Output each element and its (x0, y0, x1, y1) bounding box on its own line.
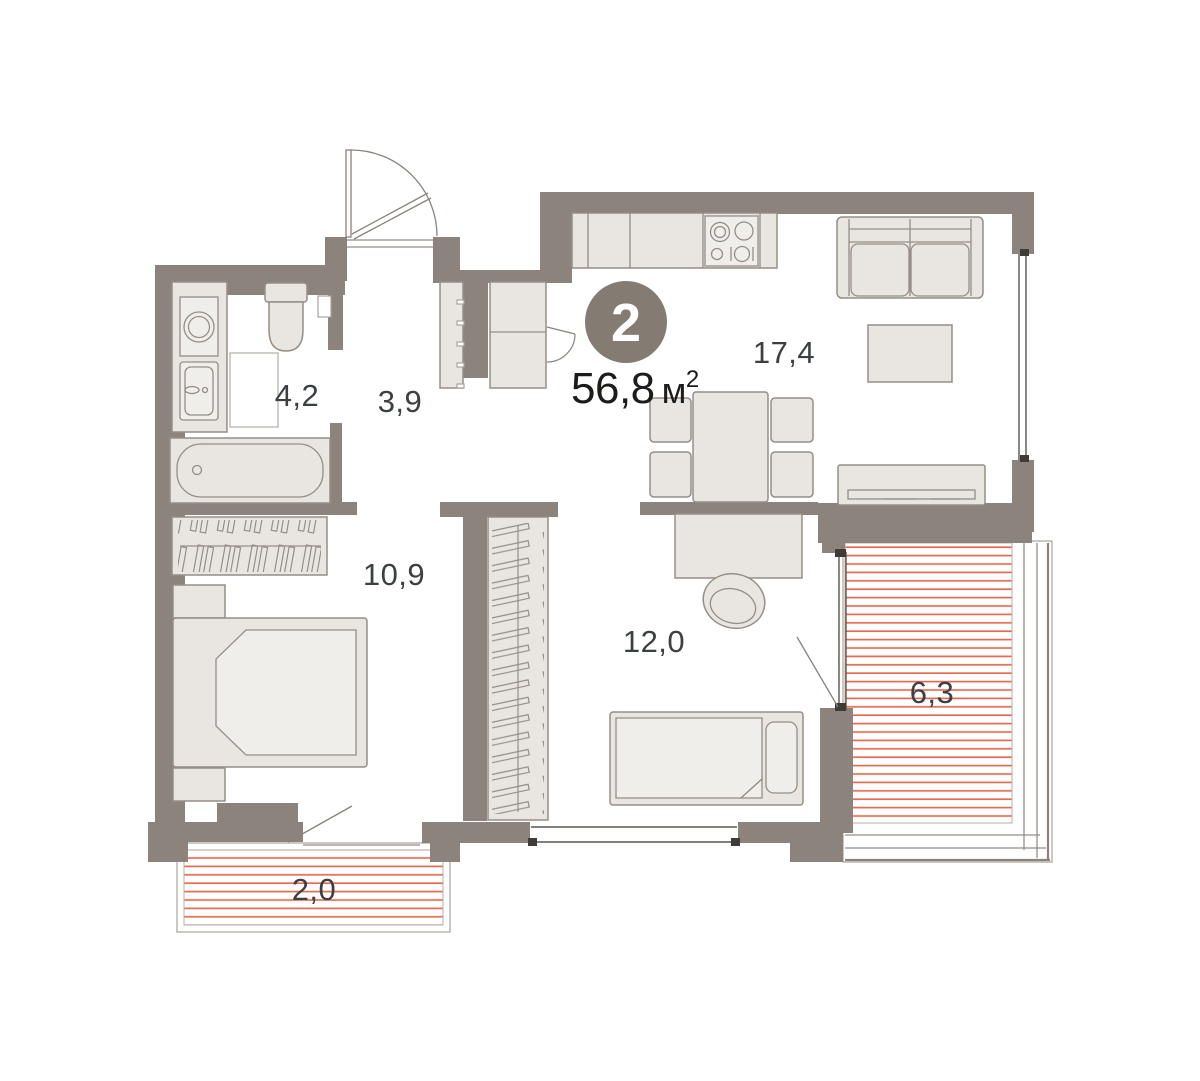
nightstand (173, 768, 225, 801)
tv-stand (838, 465, 985, 505)
sofa (837, 217, 983, 298)
floor-plan-svg: 4,2 3,9 10,9 12,0 17,4 6,3 2,0 2 56,8м2 (0, 0, 1200, 1081)
chair (771, 398, 813, 442)
child-room-area-label: 12,0 (623, 624, 685, 659)
hallway-furniture (440, 282, 575, 388)
entrance-door-swing (351, 150, 437, 236)
child-room-window (528, 827, 740, 846)
towel-holder (318, 296, 331, 317)
pillow (766, 722, 797, 793)
balcony-bottom-door (288, 806, 420, 845)
balcony-right-area-label: 6,3 (910, 675, 955, 710)
bedroom-closet (172, 517, 327, 575)
floor-plan: 4,2 3,9 10,9 12,0 17,4 6,3 2,0 2 56,8м2 (0, 0, 1200, 1081)
washing-machine (180, 297, 218, 356)
desk (675, 514, 802, 578)
coffee-table (868, 325, 952, 382)
nightstand (173, 585, 225, 618)
entrance-door (346, 150, 437, 247)
balcony-bottom-area-label: 2,0 (292, 872, 337, 907)
toilet (265, 283, 307, 351)
stove (705, 216, 758, 266)
balcony-right-door-swing (797, 637, 838, 707)
hallway-area-label: 3,9 (378, 384, 423, 419)
chair (771, 452, 813, 497)
bedroom-area-label: 10,9 (363, 557, 425, 592)
bathroom-area-label: 4,2 (275, 378, 320, 413)
kitchen-counter (572, 213, 777, 268)
child-room-furniture (488, 514, 803, 820)
bedroom-furniture (172, 517, 367, 801)
room-count: 2 (611, 293, 641, 353)
total-area: 56,8м2 (571, 364, 699, 413)
unit-badge: 2 56,8м2 (571, 281, 699, 413)
living-kitchen-area-label: 17,4 (753, 335, 815, 370)
chair (650, 452, 691, 497)
single-bed (610, 712, 803, 805)
hallway-closet (490, 282, 575, 388)
balcony-right-door (797, 549, 846, 711)
bathtub (170, 438, 330, 503)
hallway-shelf (440, 282, 464, 388)
bath-mat (230, 353, 278, 427)
wardrobe (488, 517, 548, 820)
living-room-window (1019, 249, 1029, 462)
dining-table (693, 392, 768, 502)
double-bed (173, 618, 367, 767)
sink (180, 362, 218, 420)
